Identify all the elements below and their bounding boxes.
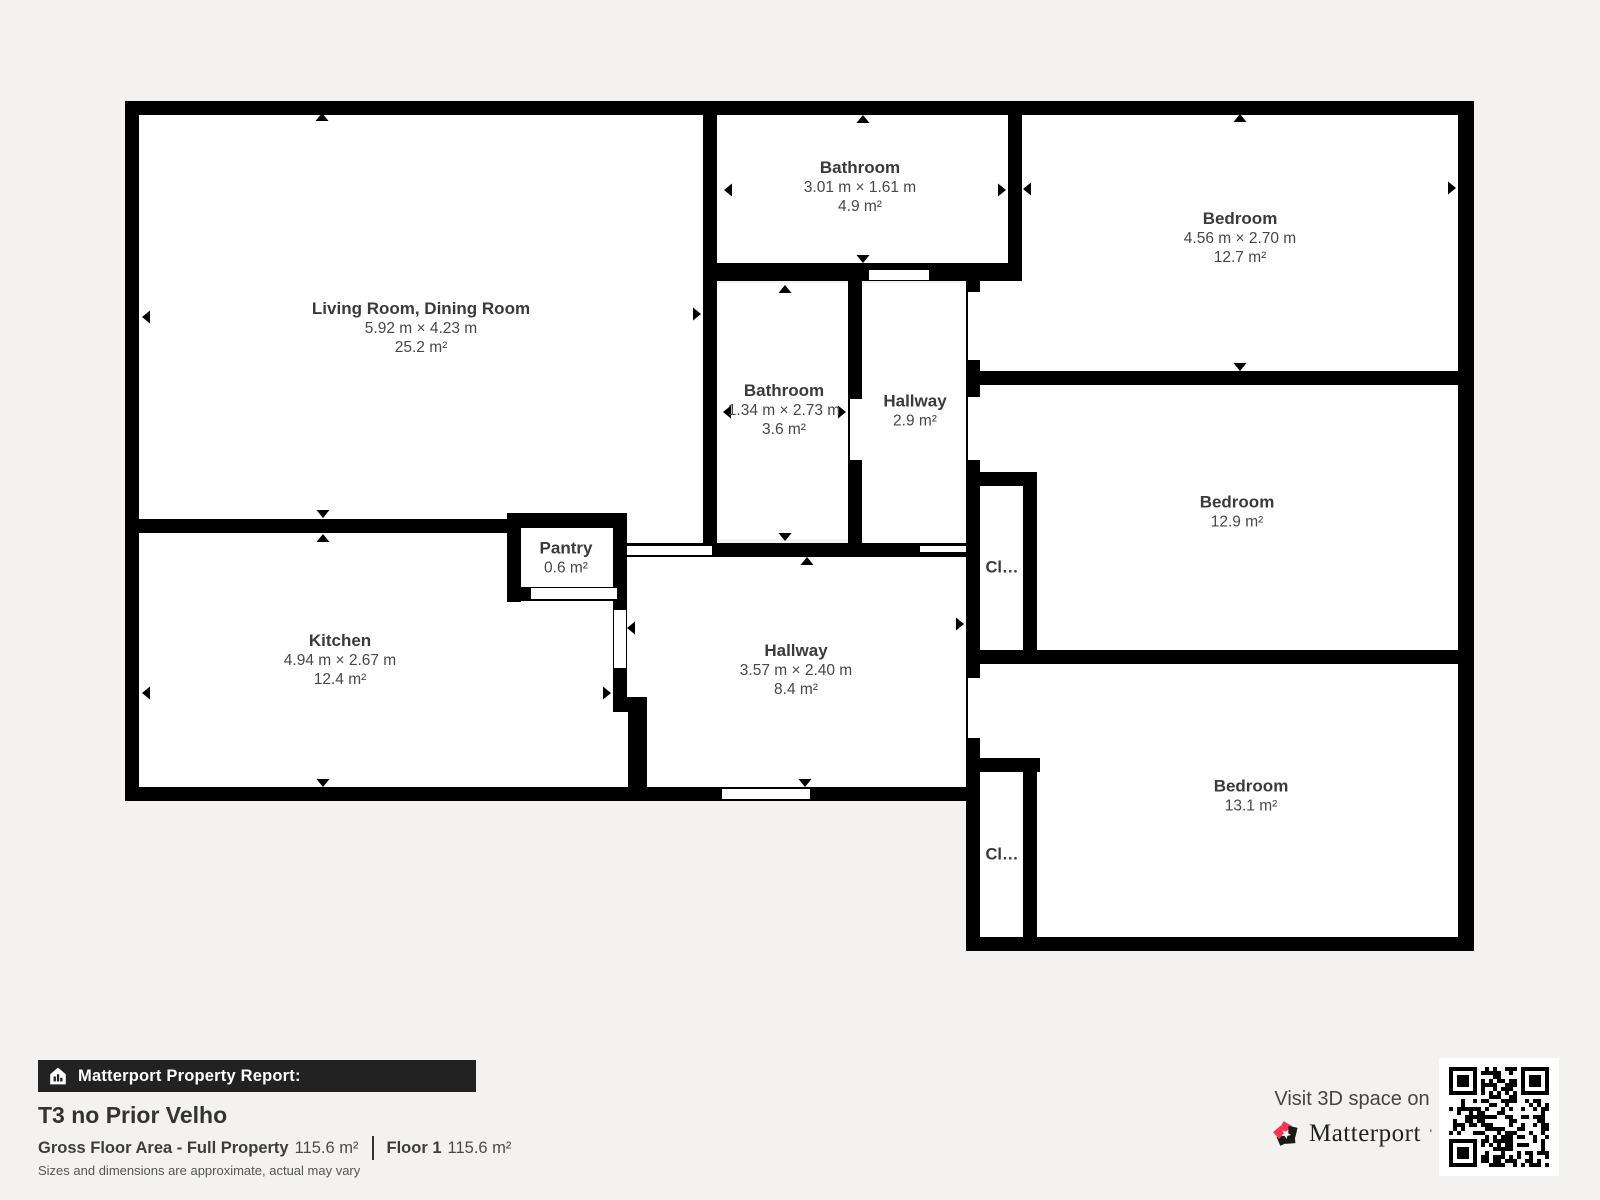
room-label-pantry: Pantry 0.6 m² (540, 539, 593, 578)
room-label-bedroom-top: Bedroom 4.56 m × 2.70 m 12.7 m² (1184, 209, 1296, 267)
visit-3d-text: Visit 3D space on (1247, 1088, 1457, 1111)
floor-value: 115.6 m² (448, 1139, 512, 1158)
room-label-closet-2: Cl… (986, 846, 1019, 865)
room-label-bathroom-middle: Bathroom 1.34 m × 2.73 m 3.6 m² (728, 381, 840, 439)
property-title: T3 no Prior Velho (38, 1102, 227, 1129)
qr-code-tile (1439, 1058, 1559, 1176)
floor-label: Floor 1 (387, 1139, 442, 1158)
room-label-hallway-top: Hallway 2.9 m² (883, 392, 946, 431)
matterport-floorplan-report: Living Room, Dining Room 5.92 m × 4.23 m… (0, 0, 1600, 1200)
floor-plan (0, 0, 1600, 1200)
report-bar-label: Matterport Property Report: (78, 1067, 301, 1086)
visit-3d-panel: Visit 3D space on Matterport' (1247, 1088, 1457, 1149)
disclaimer-note: Sizes and dimensions are approximate, ac… (38, 1163, 360, 1178)
room-label-bedroom-middle: Bedroom 12.9 m² (1200, 493, 1275, 532)
stats-divider (372, 1136, 374, 1160)
gross-floor-area-value: 115.6 m² (295, 1139, 359, 1158)
floor-area-stats: Gross Floor Area - Full Property 115.6 m… (38, 1136, 511, 1160)
room-label-bathroom-top: Bathroom 3.01 m × 1.61 m 4.9 m² (804, 158, 916, 216)
room-label-bedroom-bottom: Bedroom 13.1 m² (1214, 777, 1289, 816)
matterport-brand-row: Matterport' (1247, 1119, 1457, 1149)
room-label-living-dining: Living Room, Dining Room 5.92 m × 4.23 m… (312, 299, 530, 357)
gross-floor-area-label: Gross Floor Area - Full Property (38, 1139, 289, 1158)
room-label-kitchen: Kitchen 4.94 m × 2.67 m 12.4 m² (284, 631, 396, 689)
room-label-hallway-bottom: Hallway 3.57 m × 2.40 m 8.4 m² (740, 641, 852, 699)
matterport-house-icon (48, 1066, 68, 1086)
trademark-tick: ' (1430, 1128, 1432, 1140)
matterport-wordmark: Matterport (1309, 1120, 1421, 1148)
matterport-logo-icon (1272, 1119, 1300, 1149)
room-label-closet-1: Cl… (986, 559, 1019, 578)
report-header-bar: Matterport Property Report: (38, 1060, 476, 1092)
qr-code (1439, 1058, 1559, 1176)
